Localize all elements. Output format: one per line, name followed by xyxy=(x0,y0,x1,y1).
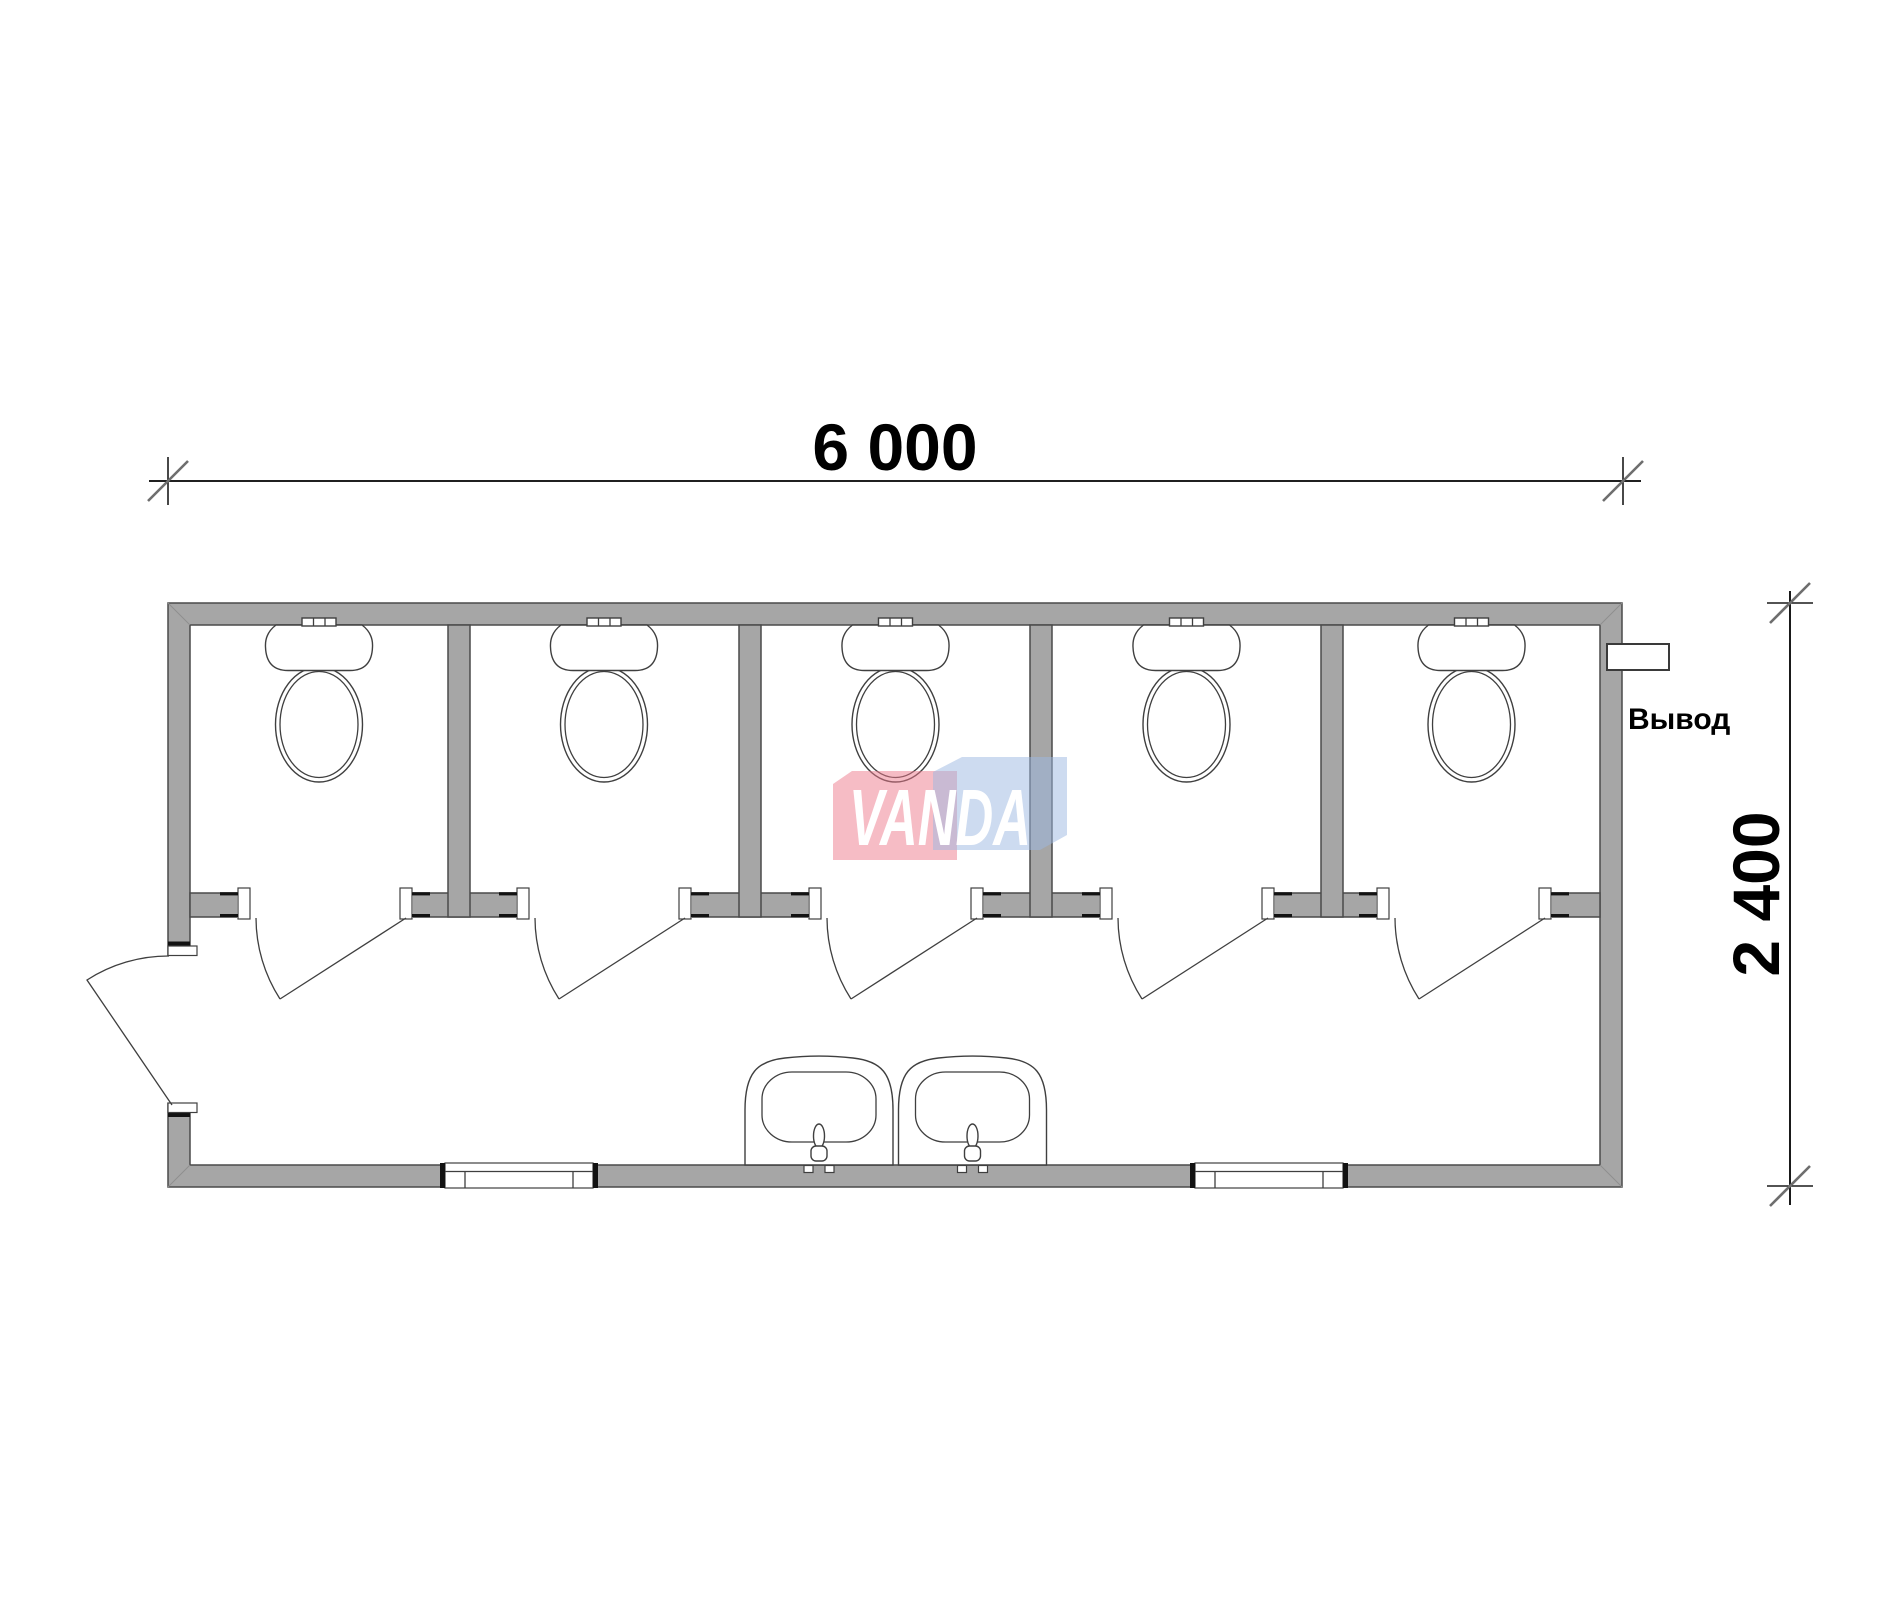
stall-door-2 xyxy=(499,888,709,1000)
dimension-height-label: 2 400 xyxy=(1719,811,1793,976)
window-2 xyxy=(1190,1163,1348,1190)
stall-partition-2 xyxy=(739,625,761,917)
stall-door-5 xyxy=(1359,888,1569,1000)
toilet-3 xyxy=(842,618,949,782)
entry-door xyxy=(87,942,197,1118)
vanda-logo: VANDA xyxy=(833,757,1067,862)
dimension-width: 6 000 xyxy=(148,410,1643,505)
outlet-label: Вывод xyxy=(1628,703,1730,736)
dimension-height: 2 400 xyxy=(1719,583,1813,1206)
sink-2 xyxy=(899,1056,1047,1172)
toilet-5 xyxy=(1418,618,1525,782)
window-1 xyxy=(440,1163,598,1190)
toilet-4 xyxy=(1133,618,1240,782)
stall-partition-1 xyxy=(448,625,470,917)
stall-partition-4 xyxy=(1321,625,1343,917)
toilet-2 xyxy=(550,618,657,782)
toilet-1 xyxy=(265,618,372,782)
logo-text: VANDA xyxy=(849,773,1031,862)
stall-door-3 xyxy=(791,888,1001,1000)
stall-door-1 xyxy=(220,888,430,1000)
floor-plan-drawing: 6 000 2 400 xyxy=(0,0,1899,1617)
entry-jamb-top xyxy=(168,946,197,956)
outlet: Вывод xyxy=(1607,644,1730,736)
floor-plan-canvas: 6 000 2 400 xyxy=(0,0,1899,1617)
sink-1 xyxy=(745,1056,893,1172)
stall-door-4 xyxy=(1082,888,1292,1000)
outlet-box xyxy=(1607,644,1669,670)
dimension-width-label: 6 000 xyxy=(812,410,977,484)
entry-door-leaf-and-arc xyxy=(87,956,172,1105)
